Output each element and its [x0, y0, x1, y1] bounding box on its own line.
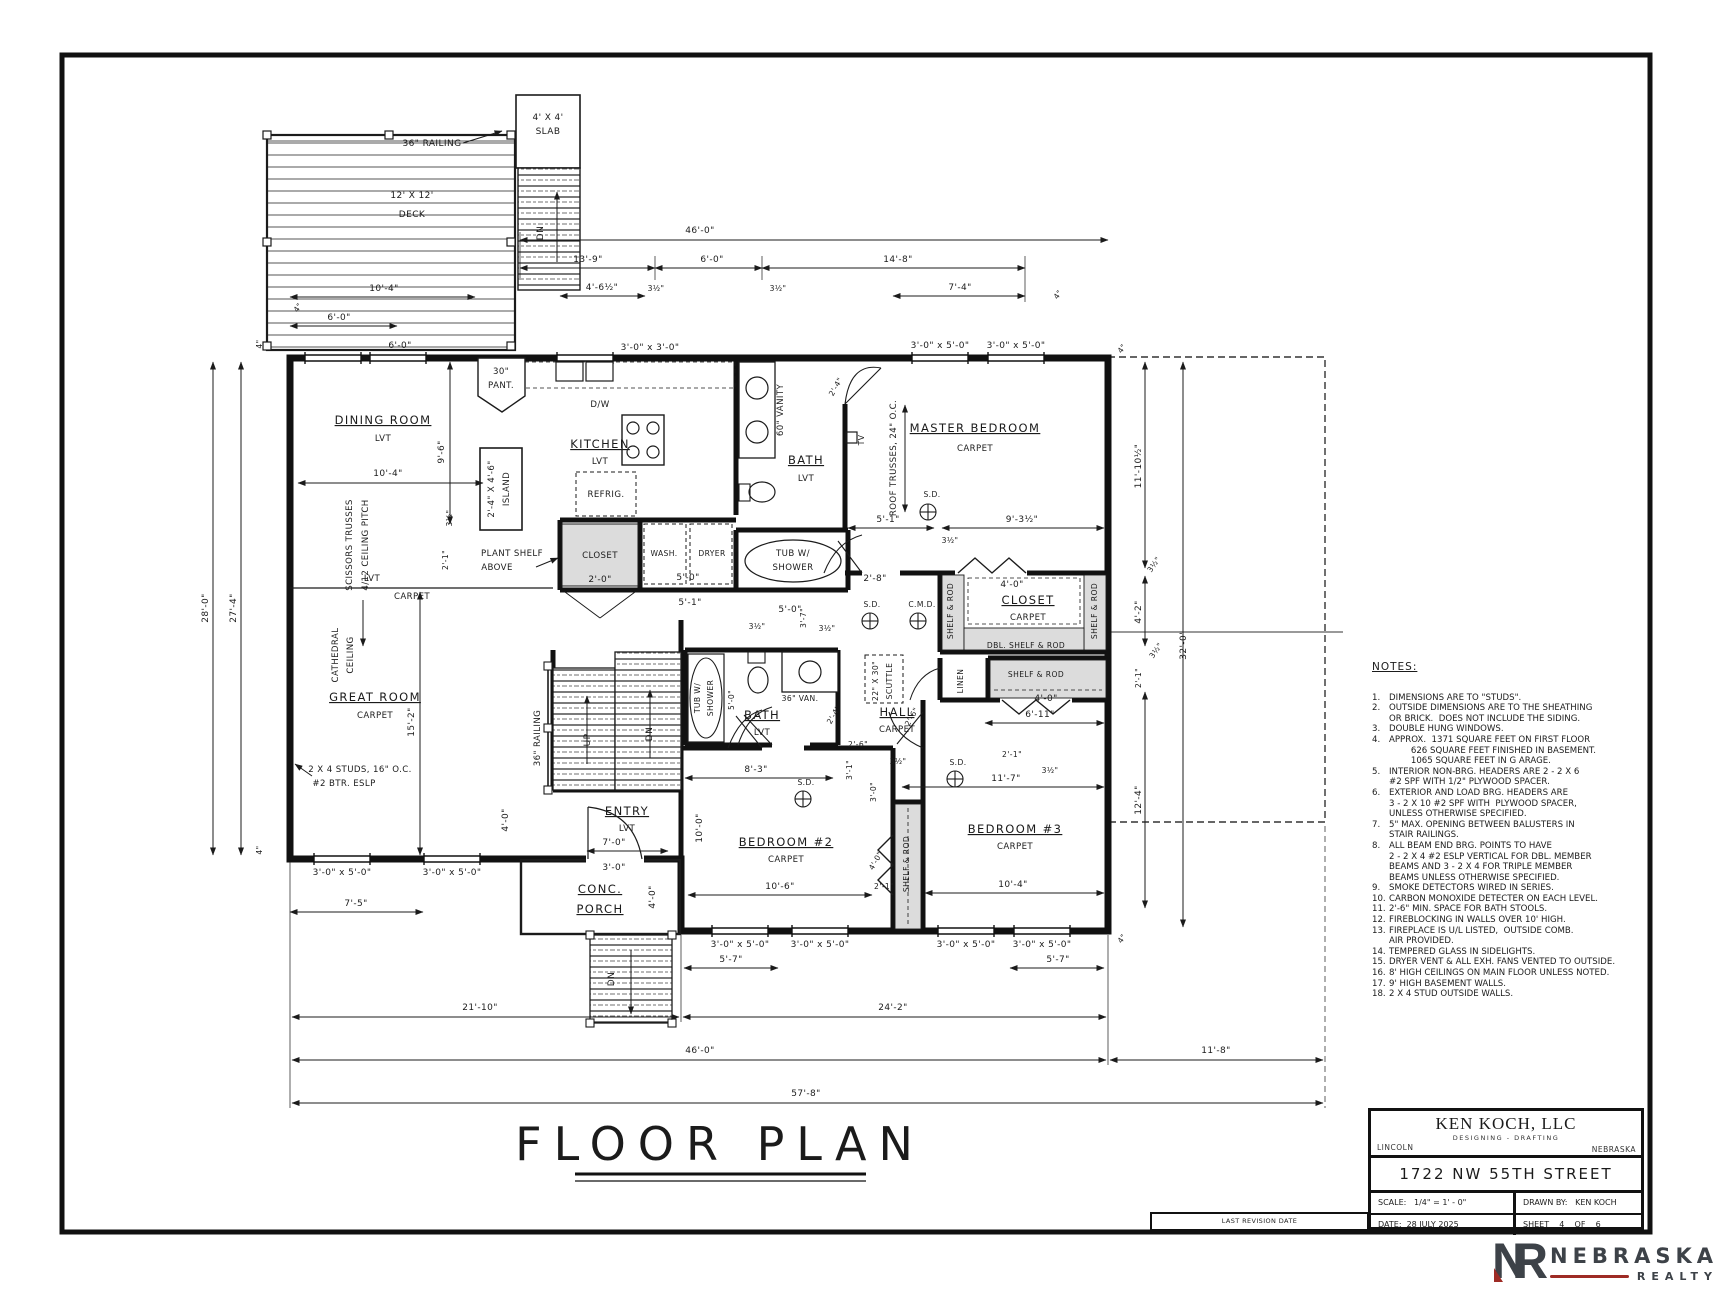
note-number: 8. — [1372, 841, 1389, 883]
plan-annotation: SCUTTLE — [885, 663, 894, 700]
note-text: DOUBLE HUNG WINDOWS. — [1389, 724, 1504, 735]
plan-annotation: 2'-8" — [863, 574, 886, 584]
plan-annotation: 3½" — [445, 510, 454, 527]
note-line: OUTSIDE DIMENSIONS ARE TO THE SHEATHING — [1389, 703, 1592, 714]
plan-annotation: SHELF & ROD — [902, 836, 911, 892]
plan-annotation: DINING ROOM — [335, 413, 432, 427]
plan-annotation: 11'-8" — [1201, 1046, 1230, 1056]
monogram-red-wedge-icon — [1494, 1268, 1503, 1282]
plan-annotation: 8'-3" — [744, 765, 767, 775]
plan-annotation: 10'-4" — [998, 880, 1027, 890]
note-line: EXTERIOR AND LOAD BRG. HEADERS ARE — [1389, 788, 1577, 799]
plan-annotation: 3½" — [648, 284, 665, 293]
plan-annotation: 3'-1" — [845, 760, 854, 780]
plan-annotation: LVT — [798, 474, 815, 484]
note-number: 11. — [1372, 904, 1389, 915]
note-item: 14.TEMPERED GLASS IN SIDELIGHTS. — [1372, 947, 1640, 958]
plan-annotation: LVT — [592, 457, 609, 467]
plan-annotation: 2'-1" — [874, 882, 894, 891]
plan-annotation: TUB W/ — [775, 549, 810, 559]
plan-annotation: 24'-2" — [878, 1003, 907, 1013]
plan-annotation: CARPET — [394, 592, 430, 602]
plan-annotation: 4'-2" — [1134, 600, 1144, 623]
note-text: EXTERIOR AND LOAD BRG. HEADERS ARE3 - 2 … — [1389, 788, 1577, 820]
note-text: 5" MAX. OPENING BETWEEN BALUSTERS INSTAI… — [1389, 820, 1575, 841]
plan-annotation: UP — [583, 733, 593, 746]
plan-annotation: GREAT ROOM — [329, 690, 421, 704]
plan-annotation: 3½" — [819, 624, 836, 633]
plan-annotation: 2'-1" — [1134, 668, 1143, 688]
note-line: 5" MAX. OPENING BETWEEN BALUSTERS IN — [1389, 820, 1575, 831]
plan-annotation: CARPET — [957, 444, 993, 454]
plan-annotation: SHOWER — [706, 679, 715, 716]
plan-annotation: 11'-10½" — [1134, 444, 1144, 489]
plan-annotation: S.D. — [923, 490, 940, 499]
plan-annotation: TUB W/ — [693, 683, 702, 714]
plan-annotation: 11'-7" — [991, 774, 1020, 784]
note-item: 16.8' HIGH CEILINGS ON MAIN FLOOR UNLESS… — [1372, 968, 1640, 979]
plan-annotation: ROOF TRUSSES, 24" O.C. — [889, 400, 899, 516]
plan-annotation: ABOVE — [481, 563, 513, 573]
plan-annotation: 3'-0" x 5'-0" — [313, 868, 372, 878]
plan-annotation: DECK — [399, 210, 426, 220]
note-line: CARBON MONOXIDE DETECTER ON EACH LEVEL. — [1389, 894, 1598, 905]
plan-annotation: LVT — [364, 574, 381, 584]
note-number: 5. — [1372, 767, 1389, 788]
plan-annotation: PANT. — [488, 381, 514, 391]
plan-annotation: SHELF & ROD — [946, 583, 955, 639]
plan-annotation: 9'-6" — [437, 440, 447, 463]
note-line: UNLESS OTHERWISE SPECIFIED. — [1389, 809, 1577, 820]
note-item: 11.2'-6" MIN. SPACE FOR BATH STOOLS. — [1372, 904, 1640, 915]
plan-annotation: 4'-0" — [501, 808, 511, 831]
plan-annotation: 4" — [255, 339, 264, 348]
note-item: 2.OUTSIDE DIMENSIONS ARE TO THE SHEATHIN… — [1372, 703, 1640, 724]
note-line: DIMENSIONS ARE TO "STUDS". — [1389, 693, 1521, 704]
bath2-vanity — [782, 652, 838, 692]
note-line: DRYER VENT & ALL EXH. FANS VENTED TO OUT… — [1389, 957, 1615, 968]
plan-annotation: DBL. SHELF & ROD — [987, 641, 1065, 650]
note-item: 15.DRYER VENT & ALL EXH. FANS VENTED TO … — [1372, 957, 1640, 968]
plan-annotation: 57'-8" — [791, 1089, 820, 1099]
plan-annotation: 5'-7" — [1046, 955, 1069, 965]
plan-annotation: 7'-5" — [344, 899, 367, 909]
note-line: #2 SPF WITH 1/2" PLYWOOD SPACER. — [1389, 777, 1579, 788]
plan-annotation: 5'-1" — [678, 598, 701, 608]
note-number: 2. — [1372, 703, 1389, 724]
bedroom3-closet-shelf — [990, 660, 1106, 698]
plan-annotation: MASTER BEDROOM — [910, 421, 1041, 435]
plan-annotation: 15'-2" — [407, 707, 417, 736]
company-city: LINCOLN — [1377, 1143, 1413, 1152]
note-item: 18.2 X 4 STUD OUTSIDE WALLS. — [1372, 989, 1640, 1000]
note-line: SMOKE DETECTORS WIRED IN SERIES. — [1389, 883, 1554, 894]
plan-annotation: SHELF & ROD — [1090, 583, 1099, 639]
plan-annotation: 4'-0" — [1000, 580, 1023, 590]
plan-annotation: BATH — [788, 453, 824, 467]
plan-annotation: 3'-7" — [799, 608, 808, 628]
note-item: 6.EXTERIOR AND LOAD BRG. HEADERS ARE3 - … — [1372, 788, 1640, 820]
plan-annotation: CLOSET — [1001, 593, 1054, 607]
title-block-company-row: KEN KOCH, LLC DESIGNING - DRAFTING LINCO… — [1371, 1111, 1641, 1155]
deck-stairs — [518, 168, 580, 290]
plan-annotation: 3½" — [1042, 766, 1059, 775]
plan-annotation: 3½" — [890, 757, 907, 766]
note-line: TEMPERED GLASS IN SIDELIGHTS. — [1389, 947, 1535, 958]
note-text: 2 X 4 STUD OUTSIDE WALLS. — [1389, 989, 1513, 1000]
note-item: 5.INTERIOR NON-BRG. HEADERS ARE 2 - 2 X … — [1372, 767, 1640, 788]
plan-annotation: #2 BTR. ESLP — [312, 779, 375, 789]
plan-annotation: ENTRY — [605, 804, 649, 818]
note-item: 7.5" MAX. OPENING BETWEEN BALUSTERS INST… — [1372, 820, 1640, 841]
plan-annotation: 3'-0" — [869, 782, 878, 802]
note-item: 8.ALL BEAM END BRG. POINTS TO HAVE2 - 2 … — [1372, 841, 1640, 883]
note-text: INTERIOR NON-BRG. HEADERS ARE 2 - 2 X 6#… — [1389, 767, 1579, 788]
plan-annotation: 9'-3½" — [1006, 515, 1038, 525]
note-number: 15. — [1372, 957, 1389, 968]
note-text: SMOKE DETECTORS WIRED IN SERIES. — [1389, 883, 1554, 894]
plan-annotation: 2'-4" X 4'-6" — [487, 460, 497, 517]
note-line: 8' HIGH CEILINGS ON MAIN FLOOR UNLESS NO… — [1389, 968, 1609, 979]
plan-annotation: CARPET — [357, 711, 393, 721]
note-line: BEAMS UNLESS OTHERWISE SPECIFIED. — [1389, 873, 1592, 884]
note-item: 12.FIREBLOCKING IN WALLS OVER 10' HIGH. — [1372, 915, 1640, 926]
plan-annotation: CARPET — [768, 855, 804, 865]
note-line: 2 - 2 X 4 #2 ESLP VERTICAL FOR DBL. MEMB… — [1389, 852, 1592, 863]
note-line: STAIR RAILINGS. — [1389, 830, 1575, 841]
plan-annotation: LVT — [375, 434, 392, 444]
plan-annotation: 3½" — [749, 622, 766, 631]
plan-annotation: 60" VANITY — [776, 384, 786, 437]
plan-annotation: 4'-0" — [1034, 694, 1057, 704]
plan-annotation: CATHEDRAL — [331, 628, 341, 683]
note-number: 6. — [1372, 788, 1389, 820]
plan-annotation: 3½" — [770, 284, 787, 293]
plan-annotation: WASH. — [650, 549, 677, 558]
plan-annotation: 3'-0" x 5'-0" — [1013, 940, 1072, 950]
note-item: 10.CARBON MONOXIDE DETECTER ON EACH LEVE… — [1372, 894, 1640, 905]
note-text: OUTSIDE DIMENSIONS ARE TO THE SHEATHINGO… — [1389, 703, 1592, 724]
note-line: 1065 SQUARE FEET IN G ARAGE. — [1389, 756, 1596, 767]
bath1-vanity — [739, 362, 775, 458]
plan-annotation: 3'-0" x 5'-0" — [791, 940, 850, 950]
floor-plan-drawing: 36" RAILING12' X 12'DECK4' X 4'SLABDN10'… — [0, 0, 1728, 1296]
plan-annotation: KITCHEN — [570, 437, 630, 451]
company-name: KEN KOCH, LLC — [1371, 1114, 1641, 1134]
drawing-sheet: 36" RAILING12' X 12'DECK4' X 4'SLABDN10'… — [0, 0, 1728, 1296]
plan-annotation: REFRIG. — [587, 490, 624, 500]
note-number: 9. — [1372, 883, 1389, 894]
plan-annotation: S.D. — [797, 778, 814, 787]
note-item: 4.APPROX. 1371 SQUARE FEET ON FIRST FLOO… — [1372, 735, 1640, 767]
plan-annotation: 3'-0" — [602, 863, 625, 873]
plan-annotation: CLOSET — [582, 551, 618, 561]
plan-annotation: 7'-0" — [602, 838, 625, 848]
note-line: INTERIOR NON-BRG. HEADERS ARE 2 - 2 X 6 — [1389, 767, 1579, 778]
plan-annotation: 4'-0" — [648, 885, 658, 908]
note-line: AIR PROVIDED. — [1389, 936, 1574, 947]
plan-annotation: 3'-0" x 5'-0" — [911, 341, 970, 351]
plan-annotation: C.M.D. — [908, 600, 935, 609]
plan-annotation: 7'-4" — [948, 283, 971, 293]
plan-annotation: 36" RAILING — [403, 139, 462, 149]
plan-annotation: DRYER — [698, 549, 726, 558]
plan-annotation: 5'-0" — [676, 573, 699, 583]
note-item: 1.DIMENSIONS ARE TO "STUDS". — [1372, 693, 1640, 704]
note-text: FIREBLOCKING IN WALLS OVER 10' HIGH. — [1389, 915, 1566, 926]
notes-list: 1.DIMENSIONS ARE TO "STUDS".2.OUTSIDE DI… — [1372, 693, 1640, 1000]
plan-annotation: 4" — [255, 845, 264, 854]
plan-annotation: 3'-0" x 3'-0" — [621, 343, 680, 353]
plan-annotation: 5'-7" — [719, 955, 742, 965]
plan-annotation: 4' X 4' — [532, 113, 563, 123]
plan-annotation: 2'-0" — [588, 575, 611, 585]
plan-annotation: 6'-0" — [327, 313, 350, 323]
plan-annotation: S.D. — [949, 758, 966, 767]
note-number: 14. — [1372, 947, 1389, 958]
title-block-scale-row: SCALE: 1/4" = 1' - 0" DRAWN BY: KEN KOCH — [1371, 1190, 1641, 1213]
scale-cell: SCALE: 1/4" = 1' - 0" — [1371, 1193, 1513, 1213]
note-text: 8' HIGH CEILINGS ON MAIN FLOOR UNLESS NO… — [1389, 968, 1609, 979]
plan-annotation: 12'-4" — [1134, 785, 1144, 814]
note-number: 16. — [1372, 968, 1389, 979]
realty-wordmark: REALTY — [1637, 1270, 1718, 1283]
plan-annotation: 32'-0" — [1179, 630, 1189, 659]
plan-annotation: CEILING — [346, 636, 356, 673]
plan-annotation: 6'-0" — [700, 255, 723, 265]
plan-annotation: 36" RAILING — [533, 710, 543, 766]
drawn-by-cell: DRAWN BY: KEN KOCH — [1513, 1193, 1641, 1213]
notes-panel: NOTES: 1.DIMENSIONS ARE TO "STUDS".2.OUT… — [1372, 662, 1640, 1000]
note-line: OR BRICK. DOES NOT INCLUDE THE SIDING. — [1389, 714, 1592, 725]
stair-down-flight — [615, 652, 681, 790]
plan-annotation: 5'-0" — [727, 690, 736, 710]
plan-annotation: 3'-0" x 5'-0" — [711, 940, 770, 950]
plan-annotation: 36" VAN. — [782, 694, 819, 703]
note-number: 1. — [1372, 693, 1389, 704]
plan-annotation: 2'-1" — [1002, 750, 1022, 759]
stair-up-flight — [553, 668, 615, 790]
nr-monogram-icon: N R — [1492, 1238, 1546, 1290]
plan-annotation: 4'-6½" — [586, 283, 618, 293]
note-line: FIREPLACE IS U/L LISTED, OUTSIDE COMB. — [1389, 926, 1574, 937]
note-line: 2 X 4 STUD OUTSIDE WALLS. — [1389, 989, 1513, 1000]
last-revision-box: LAST REVISION DATE — [1150, 1212, 1369, 1231]
plan-annotation: BATH — [744, 708, 780, 722]
plan-annotation: 6'-11" — [1025, 710, 1054, 720]
plan-annotation: 3'-0" x 5'-0" — [937, 940, 996, 950]
note-text: DRYER VENT & ALL EXH. FANS VENTED TO OUT… — [1389, 957, 1615, 968]
plan-annotation: CARPET — [1010, 613, 1046, 623]
plan-annotation: SHELF & ROD — [1008, 670, 1064, 679]
plan-annotation: PORCH — [576, 902, 623, 916]
plan-annotation: ISLAND — [502, 472, 512, 506]
note-text: TEMPERED GLASS IN SIDELIGHTS. — [1389, 947, 1535, 958]
plan-title-text: FLOOR PLAN — [515, 1117, 925, 1171]
note-item: 17.9' HIGH BASEMENT WALLS. — [1372, 979, 1640, 990]
title-block: KEN KOCH, LLC DESIGNING - DRAFTING LINCO… — [1368, 1108, 1644, 1230]
plan-annotation: 46'-0" — [685, 1046, 714, 1056]
note-item: 13.FIREPLACE IS U/L LISTED, OUTSIDE COMB… — [1372, 926, 1640, 947]
plan-annotation: 10'-4" — [373, 469, 402, 479]
note-text: APPROX. 1371 SQUARE FEET ON FIRST FLOOR … — [1389, 735, 1596, 767]
plan-annotation: SHOWER — [773, 563, 814, 573]
brand-logo: N R NEBRASKA REALTY — [1492, 1238, 1718, 1290]
monogram-r: R — [1512, 1232, 1548, 1290]
company-state: NEBRASKA — [1592, 1145, 1636, 1154]
plan-annotation: 3'-0" x 5'-0" — [423, 868, 482, 878]
note-line: 626 SQUARE FEET FINISHED IN BASEMENT. — [1389, 746, 1596, 757]
plan-annotation: SLAB — [536, 127, 561, 137]
note-line: BEAMS AND 3 - 2 X 4 FOR TRIPLE MEMBER — [1389, 862, 1592, 873]
plan-annotation: DN — [536, 226, 546, 240]
note-text: FIREPLACE IS U/L LISTED, OUTSIDE COMB.AI… — [1389, 926, 1574, 947]
plan-annotation: CARPET — [997, 842, 1033, 852]
plan-annotation: 2'-6" — [848, 740, 868, 749]
note-text: DIMENSIONS ARE TO "STUDS". — [1389, 693, 1521, 704]
plan-annotation: 21'-10" — [462, 1003, 498, 1013]
plan-annotation: BEDROOM #3 — [968, 822, 1063, 836]
note-number: 13. — [1372, 926, 1389, 947]
plan-annotation: PLANT SHELF — [481, 549, 543, 559]
plan-annotation: SCISSORS TRUSSES — [345, 499, 355, 591]
plan-annotation: 6'-0" — [388, 341, 411, 351]
note-line: ALL BEAM END BRG. POINTS TO HAVE — [1389, 841, 1592, 852]
company-subtitle: DESIGNING - DRAFTING — [1371, 1134, 1641, 1142]
note-text: 2'-6" MIN. SPACE FOR BATH STOOLS. — [1389, 904, 1547, 915]
note-number: 4. — [1372, 735, 1389, 767]
plan-annotation: 5'-1" — [876, 515, 899, 525]
plan-annotation: 12' X 12' — [390, 191, 433, 201]
note-number: 17. — [1372, 979, 1389, 990]
plan-annotation: 10'-6" — [765, 882, 794, 892]
note-number: 3. — [1372, 724, 1389, 735]
note-line: DOUBLE HUNG WINDOWS. — [1389, 724, 1504, 735]
plan-annotation: 14'-8" — [883, 255, 912, 265]
plan-annotation: 13'-9" — [573, 255, 602, 265]
note-number: 12. — [1372, 915, 1389, 926]
plan-annotation: TV — [857, 434, 866, 446]
notes-title: NOTES: — [1372, 662, 1640, 673]
logo-red-underline — [1550, 1275, 1629, 1278]
note-number: 18. — [1372, 989, 1389, 1000]
plan-annotation: 2 X 4 STUDS, 16" O.C. — [308, 765, 411, 775]
plan-annotation: S.D. — [863, 600, 880, 609]
note-item: 3.DOUBLE HUNG WINDOWS. — [1372, 724, 1640, 735]
plan-annotation: 46'-0" — [685, 226, 714, 236]
note-line: 9' HIGH BASEMENT WALLS. — [1389, 979, 1506, 990]
brand-wordmark: NEBRASKA REALTY — [1550, 1238, 1718, 1283]
plan-annotation: 30" — [493, 367, 509, 377]
kitchen-sink — [556, 362, 583, 381]
note-line: 3 - 2 X 10 #2 SPF WITH PLYWOOD SPACER, — [1389, 799, 1577, 810]
plan-annotation: CONC. — [578, 882, 622, 896]
note-number: 10. — [1372, 894, 1389, 905]
project-address: 1722 NW 55TH STREET — [1371, 1155, 1641, 1190]
plan-annotation: 2'-1" — [441, 550, 450, 570]
plan-annotation: BEDROOM #2 — [739, 835, 834, 849]
plan-annotation: DN — [607, 972, 617, 986]
nebraska-wordmark: NEBRASKA — [1550, 1244, 1718, 1268]
plan-annotation: 27'-4" — [229, 593, 239, 622]
plan-annotation: LVT — [619, 824, 636, 834]
note-text: CARBON MONOXIDE DETECTER ON EACH LEVEL. — [1389, 894, 1598, 905]
plan-annotation: DN — [645, 727, 655, 741]
plan-annotation: LVT — [754, 728, 771, 738]
plan-annotation: D/W — [590, 400, 609, 410]
plan-annotation: 22" X 30" — [871, 661, 880, 701]
plan-annotation: 3½" — [942, 536, 959, 545]
note-line: 2'-6" MIN. SPACE FOR BATH STOOLS. — [1389, 904, 1547, 915]
plan-annotation: 3'-0" x 5'-0" — [987, 341, 1046, 351]
note-item: 9.SMOKE DETECTORS WIRED IN SERIES. — [1372, 883, 1640, 894]
note-text: 9' HIGH BASEMENT WALLS. — [1389, 979, 1506, 990]
note-number: 7. — [1372, 820, 1389, 841]
note-line: APPROX. 1371 SQUARE FEET ON FIRST FLOOR — [1389, 735, 1596, 746]
plan-annotation: 10'-4" — [369, 284, 398, 294]
note-line: FIREBLOCKING IN WALLS OVER 10' HIGH. — [1389, 915, 1566, 926]
plan-annotation: LINEN — [956, 669, 965, 694]
plan-annotation: 10'-0" — [695, 813, 705, 842]
note-text: ALL BEAM END BRG. POINTS TO HAVE2 - 2 X … — [1389, 841, 1592, 883]
plan-annotation: 28'-0" — [201, 593, 211, 622]
